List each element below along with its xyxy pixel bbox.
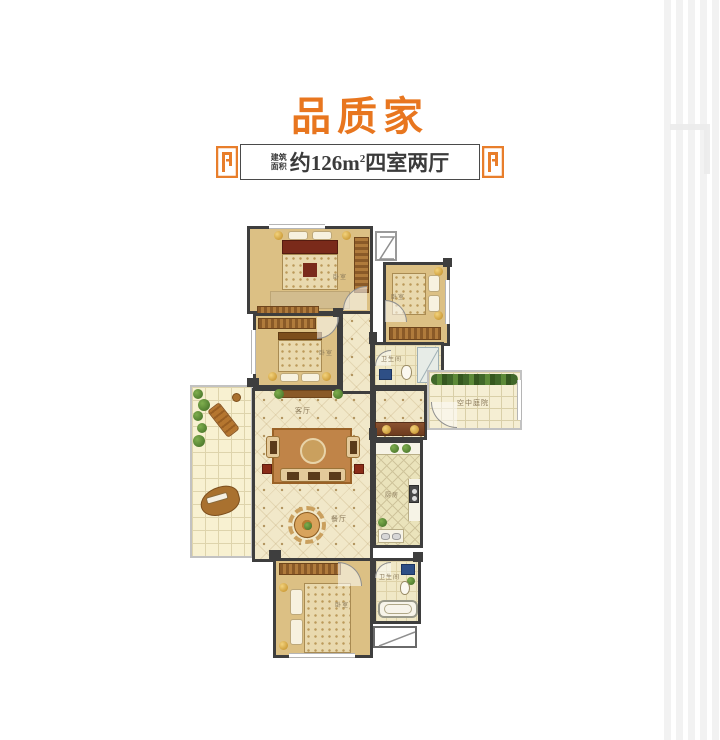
planter [431,374,518,385]
corridor [340,312,373,394]
room-label-kitchen: 厨房 [385,492,399,500]
toilet [401,365,412,380]
sink [379,369,392,380]
area-label: 建筑 面积 [271,153,287,171]
kitchen-sink [378,529,404,543]
room-label-bathroom-middle: 卫生间 [381,356,402,364]
bathtub [378,600,418,618]
wardrobe [279,563,341,575]
lounge-chair [207,402,240,438]
area-label-line2: 面积 [271,162,287,171]
window [289,653,355,658]
window [269,224,325,229]
room-label-bedroom-middle-left: 卧室 [319,350,333,358]
dining-table [294,512,320,538]
room-label-sky-courtyard: 空中庭院 [457,400,489,408]
area-banner: 建筑 面积 约126m2四室两厅 [0,144,720,180]
area-banner-box: 建筑 面积 约126m2四室两厅 [240,144,480,180]
tv-cabinet [282,390,332,398]
layout-text: 四室两厅 [365,151,449,175]
terrace [190,385,253,558]
page-title: 品质家 [0,84,720,142]
bed [289,583,351,653]
vent-shaft [375,231,397,261]
end-table [354,464,364,474]
end-table [262,464,272,474]
room-label-bathroom-bottom: 卫生间 [379,574,400,582]
sofa [280,468,346,482]
room-label-bedroom-top-right: 卧室 [391,294,405,302]
room-label-dining: 餐厅 [331,516,347,524]
living-rug [272,428,352,484]
room-label-living-room: 客厅 [295,408,311,416]
window [517,380,522,420]
sink [401,564,415,575]
area-number: 约126m [290,151,360,175]
entry-cabinet [375,422,425,436]
bed [278,332,322,384]
window [445,280,450,324]
ac-platform [373,626,417,648]
bed [282,230,338,290]
piano [197,482,243,520]
room-label-bedroom-top-left: 卧室 [333,274,347,282]
seal-icon [216,146,238,178]
window [251,330,256,374]
wardrobe [354,237,369,293]
area-label-line1: 建筑 [271,153,287,162]
room-label-bedroom-bottom: 卧室 [335,602,349,610]
armchair [346,436,360,458]
seal-icon [482,146,504,178]
area-value: 约126m2四室两厅 [290,147,450,177]
toilet [400,581,410,595]
wardrobe [389,327,441,340]
stove [409,485,419,503]
wardrobe [258,318,316,329]
armchair [266,436,280,458]
side-table [232,393,241,402]
floorplan: 卧室 卧室 卧室 卫生间 空中庭院 客厅 厨房 餐厅 卫生间 卧室 [185,222,525,680]
